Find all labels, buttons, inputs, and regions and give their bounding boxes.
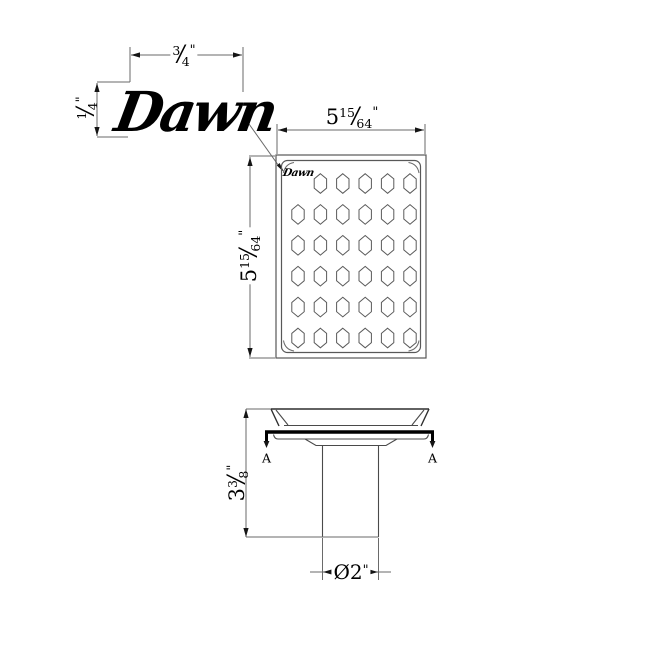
- arrow-left-icon: [131, 52, 140, 57]
- hex-grid: [292, 174, 416, 348]
- arrow-down-icon: [94, 127, 99, 136]
- hex-hole: [381, 297, 393, 317]
- hex-hole: [381, 174, 393, 194]
- hex-hole: [314, 297, 326, 317]
- hex-hole: [292, 328, 304, 348]
- hex-hole: [337, 174, 349, 194]
- arrow-up-icon: [94, 83, 99, 92]
- plate-height-label: 515/64": [239, 228, 261, 285]
- body-height-label: 33/8": [227, 465, 249, 502]
- hex-hole: [314, 205, 326, 225]
- hex-hole: [314, 174, 326, 194]
- hex-hole: [381, 236, 393, 256]
- hex-hole: [359, 328, 371, 348]
- hex-hole: [381, 205, 393, 225]
- plate-width-label: 515/64": [324, 107, 381, 129]
- arrow-down-icon: [243, 528, 248, 537]
- arrow-up-icon: [247, 157, 252, 166]
- outlet-diameter-label: Ø2": [331, 562, 370, 582]
- side-view: [246, 409, 435, 537]
- hex-hole: [404, 266, 416, 286]
- section-label-right: A: [428, 451, 437, 466]
- hex-hole: [359, 205, 371, 225]
- arrow-right-icon: [415, 127, 424, 132]
- hex-hole: [337, 266, 349, 286]
- brand-logo: Dawn: [111, 84, 279, 139]
- flange-end-left: [274, 435, 279, 440]
- outlet-shoulder: [305, 439, 397, 446]
- hex-hole: [314, 328, 326, 348]
- arrow-down-icon: [247, 348, 252, 357]
- hex-hole: [359, 174, 371, 194]
- section-arrow-left-icon: [264, 441, 270, 448]
- hex-hole: [337, 297, 349, 317]
- top-view: [276, 155, 426, 358]
- section-arrow-right-icon: [430, 441, 436, 448]
- hex-hole: [337, 205, 349, 225]
- plate-logo: Dawn: [282, 168, 315, 179]
- hex-hole: [381, 266, 393, 286]
- technical-drawing-page: Dawn Dawn 3/4" 1/4" 515/64" 515/64" 33/8…: [0, 0, 645, 645]
- hex-hole: [292, 266, 304, 286]
- hex-hole: [314, 236, 326, 256]
- hex-hole: [337, 328, 349, 348]
- corner-ornament-tr: [409, 163, 420, 174]
- hex-hole: [404, 297, 416, 317]
- hex-hole: [292, 205, 304, 225]
- hex-hole: [359, 236, 371, 256]
- hex-hole: [314, 266, 326, 286]
- logo-width-label: 3/4": [170, 45, 197, 67]
- hex-hole: [292, 297, 304, 317]
- corner-ornament-br: [409, 341, 420, 352]
- hex-hole: [292, 236, 304, 256]
- flange-end-right: [424, 435, 429, 440]
- hex-hole: [404, 328, 416, 348]
- hex-hole: [337, 236, 349, 256]
- logo-height-label: 1/4": [76, 96, 98, 119]
- arrow-right-icon: [233, 52, 242, 57]
- plate-inner-edge: [282, 161, 421, 353]
- hex-hole: [404, 174, 416, 194]
- hex-hole: [381, 328, 393, 348]
- arrow-up-icon: [243, 409, 248, 418]
- arrow-left-icon: [278, 127, 287, 132]
- hex-hole: [404, 205, 416, 225]
- corner-ornament-bl: [284, 341, 295, 352]
- hex-hole: [359, 297, 371, 317]
- hex-hole: [404, 236, 416, 256]
- section-label-left: A: [262, 451, 271, 466]
- hex-hole: [359, 266, 371, 286]
